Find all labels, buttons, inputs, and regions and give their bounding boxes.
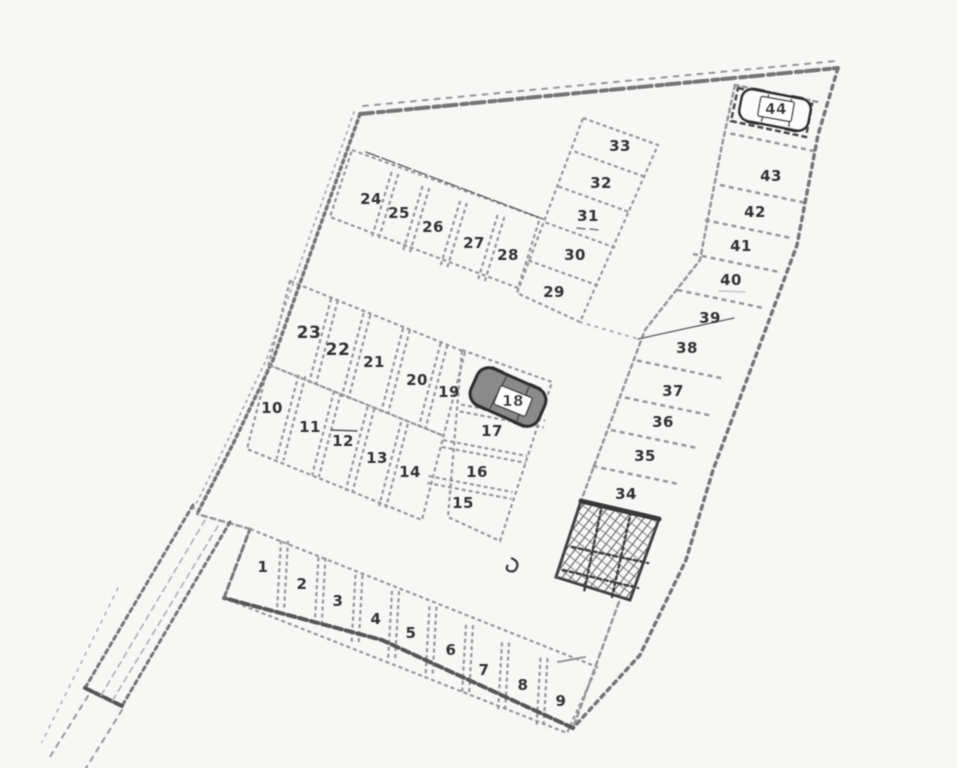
stall-label-28: 28 bbox=[497, 246, 519, 264]
overline-12 bbox=[331, 430, 357, 431]
stall-divider-2-3-b bbox=[321, 558, 325, 628]
stall-label-13: 13 bbox=[366, 449, 388, 467]
stall-divider-36-35 bbox=[611, 430, 697, 448]
stall-divider-42-41 bbox=[705, 220, 791, 238]
stall-label-27: 27 bbox=[463, 234, 485, 252]
stall-label-30: 30 bbox=[564, 246, 586, 264]
left-boundary-double bbox=[192, 112, 354, 512]
stall-label-35: 35 bbox=[634, 447, 656, 465]
left-boundary bbox=[197, 114, 360, 514]
site-plan: 1234567891011121314151617181920212223242… bbox=[0, 0, 957, 768]
stall-label-8: 8 bbox=[518, 676, 529, 694]
stall-divider-17-16-b bbox=[443, 440, 527, 456]
stall-divider-4-5 bbox=[388, 591, 392, 661]
stall-divider-5-6 bbox=[426, 606, 430, 676]
row-1-9-left-cap bbox=[224, 529, 250, 598]
stall-label-23: 23 bbox=[297, 323, 322, 343]
stall-label-31: 31 bbox=[577, 207, 599, 225]
stall-label-38: 38 bbox=[676, 339, 698, 357]
stall-divider-41-40 bbox=[693, 254, 779, 272]
stall-label-20: 20 bbox=[406, 371, 428, 389]
stall-label-43: 43 bbox=[760, 167, 782, 185]
stall-label-29: 29 bbox=[543, 283, 565, 301]
stall-label-1: 1 bbox=[258, 558, 269, 576]
stall-label-22: 22 bbox=[326, 340, 351, 360]
stall-label-16: 16 bbox=[466, 463, 488, 481]
site-plan-svg: 1234567891011121314151617181920212223242… bbox=[0, 0, 957, 768]
stall-label-19: 19 bbox=[438, 383, 460, 401]
stall-divider-2-3 bbox=[315, 557, 319, 627]
driveway-se-edge bbox=[122, 522, 230, 706]
stall-label-25: 25 bbox=[388, 204, 410, 222]
stall-label-18: 18 bbox=[502, 392, 524, 410]
driveway-outer-faint bbox=[42, 588, 118, 742]
building-tail-line bbox=[573, 602, 619, 728]
stall-label-32: 32 bbox=[590, 174, 612, 192]
stall-label-6: 6 bbox=[446, 641, 457, 659]
stall-label-15: 15 bbox=[452, 494, 474, 512]
underline-40 bbox=[719, 291, 745, 292]
right-boundary bbox=[573, 68, 838, 728]
stall-divider-6-7-b bbox=[469, 625, 473, 695]
stall-label-34: 34 bbox=[615, 485, 637, 503]
stall-label-40: 40 bbox=[720, 271, 742, 289]
driveway-nw-edge bbox=[85, 505, 193, 688]
stall-label-21: 21 bbox=[363, 353, 385, 371]
stall-divider-6-7 bbox=[462, 625, 466, 695]
stall-divider-31-30 bbox=[546, 223, 618, 249]
stall-label-5: 5 bbox=[406, 624, 417, 642]
stall-label-24: 24 bbox=[360, 190, 382, 208]
stall-divider-7-8 bbox=[498, 642, 502, 712]
stall-divider-7-8-b bbox=[505, 643, 509, 713]
stall-label-26: 26 bbox=[422, 218, 444, 236]
stall-label-11: 11 bbox=[299, 418, 321, 436]
stall-divider-8-9 bbox=[537, 658, 541, 728]
driveway-ext-2 bbox=[86, 710, 122, 768]
sketch-layer: 1234567891011121314151617181920212223242… bbox=[42, 61, 838, 768]
underdash-31-b bbox=[590, 229, 598, 230]
stall-divider-1-2 bbox=[277, 540, 281, 610]
stall-label-12: 12 bbox=[332, 432, 354, 450]
stall-label-44: 44 bbox=[765, 100, 787, 118]
stall-label-14: 14 bbox=[399, 463, 421, 481]
stall-label-7: 7 bbox=[479, 661, 490, 679]
stall-divider-35-34 bbox=[593, 466, 679, 484]
stall-label-2: 2 bbox=[297, 575, 308, 593]
stall-label-39: 39 bbox=[699, 309, 721, 327]
stall-divider-40-39 bbox=[678, 290, 764, 308]
stall-label-10: 10 bbox=[261, 399, 283, 417]
stall-label-37: 37 bbox=[662, 382, 684, 400]
stall-divider-1-2-b bbox=[284, 541, 288, 611]
stall-divider-38-37 bbox=[637, 361, 723, 379]
stall-label-9: 9 bbox=[556, 692, 567, 710]
aisle-dots bbox=[580, 322, 638, 339]
stall-label-17: 17 bbox=[481, 422, 503, 440]
underdash-31-a bbox=[577, 228, 585, 229]
stall-label-4: 4 bbox=[371, 610, 382, 628]
stall-label-41: 41 bbox=[730, 237, 752, 255]
scribble-mark bbox=[507, 558, 518, 572]
stall-label-33: 33 bbox=[609, 137, 631, 155]
driveway-ext-1 bbox=[48, 696, 88, 760]
stall-divider-4-5-b bbox=[395, 591, 399, 661]
stall-label-3: 3 bbox=[333, 592, 344, 610]
stall-label-42: 42 bbox=[744, 203, 766, 221]
stall-divider-43-42 bbox=[720, 185, 806, 203]
stall-label-36: 36 bbox=[652, 413, 674, 431]
driveway-inner-1 bbox=[99, 520, 205, 699]
